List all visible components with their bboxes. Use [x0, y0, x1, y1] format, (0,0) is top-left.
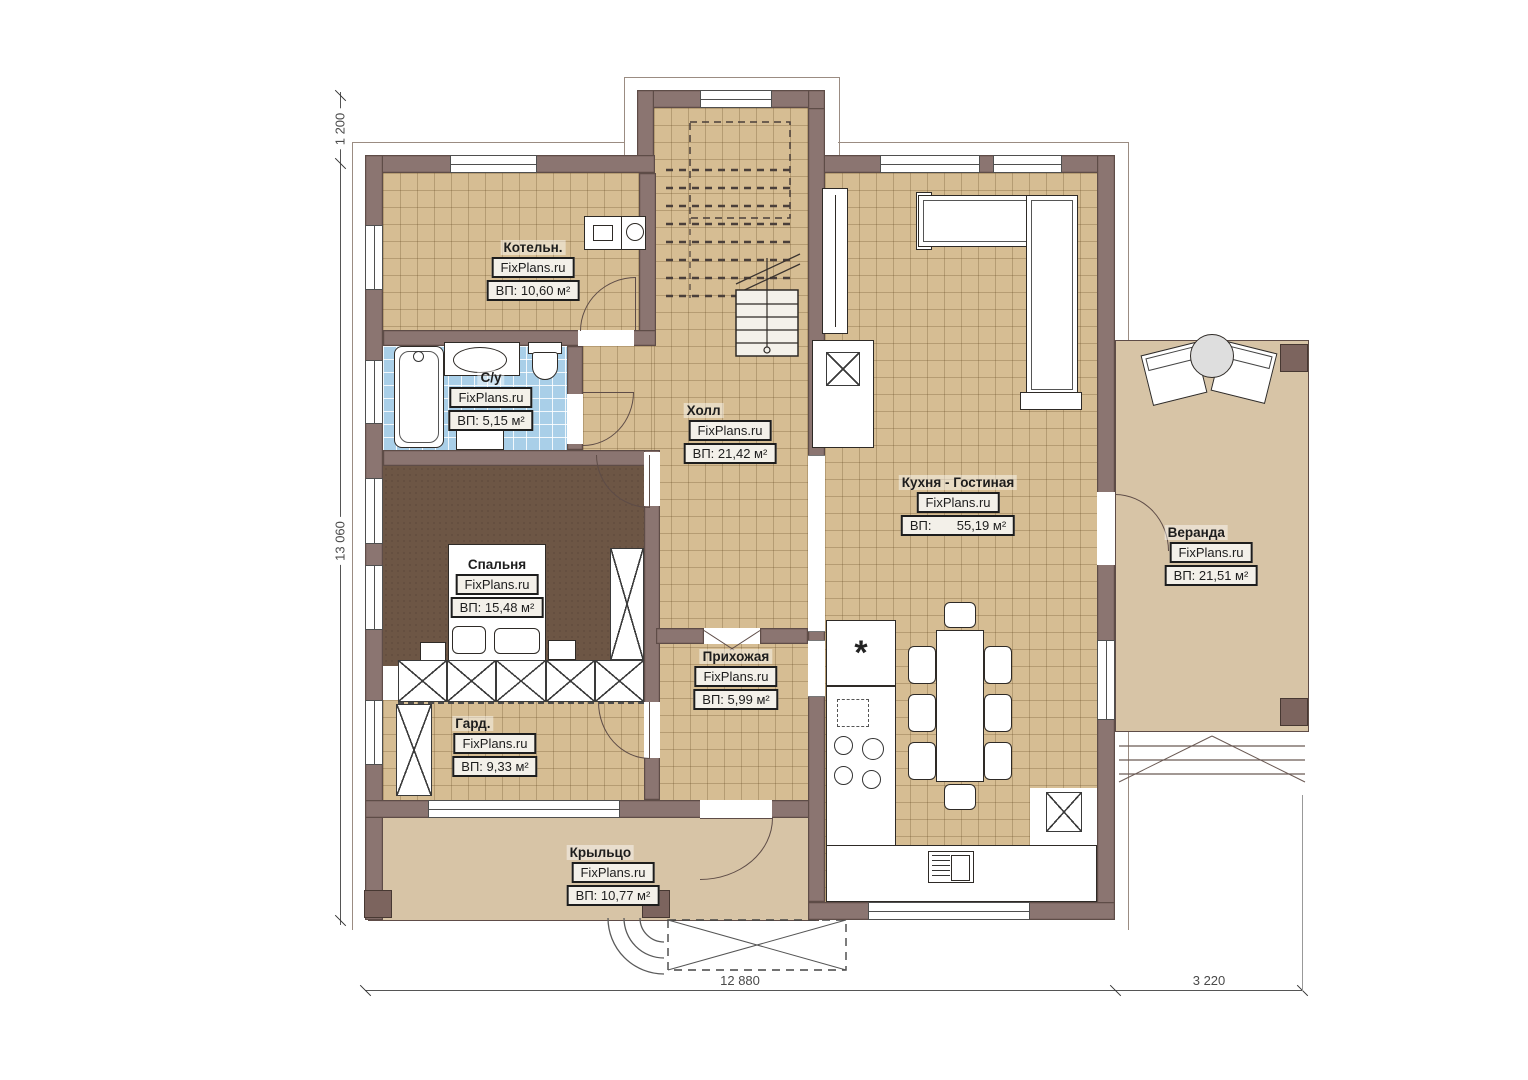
area-box: ВП: 15,48 м² — [451, 597, 544, 618]
veranda-door-opening — [1097, 492, 1115, 565]
chair — [984, 694, 1012, 732]
door-opening — [578, 330, 634, 346]
sink-basin-icon — [951, 855, 970, 881]
washing-machine — [456, 428, 504, 450]
brand-box: FixPlans.ru — [455, 574, 538, 595]
brand-box: FixPlans.ru — [1169, 542, 1252, 563]
window — [450, 155, 537, 173]
bathtub — [394, 346, 444, 448]
nightstand — [420, 642, 446, 662]
room-name: Крыльцо — [567, 845, 634, 860]
chair — [908, 742, 936, 780]
chair — [908, 646, 936, 684]
area-box: ВП: 9,33 м² — [452, 756, 537, 777]
chair — [944, 602, 976, 628]
dimension-line-left — [340, 92, 341, 925]
tall-cabinet — [822, 188, 848, 334]
drainboard-icon — [932, 855, 950, 879]
brand-box: FixPlans.ru — [453, 733, 536, 754]
burner-icon — [862, 770, 881, 789]
stove — [828, 730, 894, 802]
room-label-entry: Прихожая FixPlans.ru ВП: 5,99 м² — [693, 649, 778, 710]
toilet-bowl — [532, 352, 558, 380]
nightstand — [548, 640, 576, 660]
dimension-label-12880: 12 880 — [716, 973, 764, 988]
dining-table — [936, 630, 984, 782]
window — [365, 565, 383, 630]
window — [365, 225, 383, 290]
dimension-label-1200: 1 200 — [333, 109, 348, 150]
column — [364, 890, 392, 918]
room-label-wardrobe: Гард. FixPlans.ru ВП: 9,33 м² — [452, 716, 537, 777]
kitchen-sink-unit — [928, 851, 974, 883]
area-box: ВП: 21,51 м² — [1165, 565, 1258, 586]
closet-cell — [595, 660, 644, 702]
burner-icon — [834, 736, 853, 755]
passage-opening — [808, 640, 825, 697]
sofa-armrest — [1020, 392, 1082, 410]
chair — [984, 742, 1012, 780]
passage-opening — [808, 455, 825, 632]
tall-cabinet-line — [835, 195, 836, 327]
room-label-porch: Крыльцо FixPlans.ru ВП: 10,77 м² — [567, 845, 660, 906]
eaves-left — [352, 142, 353, 930]
window — [1097, 640, 1115, 720]
room-label-veranda: Веранда FixPlans.ru ВП: 21,51 м² — [1165, 525, 1258, 586]
room-label-hall: Холл FixPlans.ru ВП: 21,42 м² — [684, 403, 777, 464]
room-name: Спальня — [465, 557, 529, 572]
brand-box: FixPlans.ru — [916, 492, 999, 513]
eaves-top-left — [352, 142, 624, 143]
eaves-right-upper — [1128, 142, 1129, 340]
closet-cell — [398, 660, 447, 702]
area-box: ВП: 5,15 м² — [448, 410, 533, 431]
brand-box: FixPlans.ru — [571, 862, 654, 883]
brand-box: FixPlans.ru — [491, 257, 574, 278]
wall — [760, 628, 808, 644]
round-table — [1190, 334, 1234, 378]
column — [1280, 344, 1308, 372]
room-name: Гард. — [452, 716, 493, 731]
area-box: ВП: 5,99 м² — [693, 689, 778, 710]
window — [428, 800, 620, 818]
brand-box: FixPlans.ru — [688, 420, 771, 441]
extension-line — [1302, 795, 1303, 991]
wall — [656, 628, 704, 644]
room-name: С/у — [477, 370, 504, 385]
burner-icon — [834, 766, 853, 785]
fireplace-flue-icon — [826, 352, 860, 386]
staircase — [654, 108, 808, 358]
wardrobe-cabinet — [396, 704, 432, 796]
window — [880, 155, 980, 173]
room-name: Кухня - Гостиная — [899, 475, 1017, 490]
burner-icon — [862, 738, 884, 760]
brand-box: FixPlans.ru — [449, 387, 532, 408]
boiler-circle-icon — [626, 223, 644, 241]
window — [868, 902, 1030, 920]
area-box: ВП: 21,42 м² — [684, 443, 777, 464]
chair — [944, 784, 976, 810]
dimension-label-3220: 3 220 — [1189, 973, 1230, 988]
bathtub-faucet-icon — [413, 351, 424, 362]
dimension-label-13060: 13 060 — [333, 517, 348, 565]
pillow — [494, 628, 540, 654]
wardrobe-cabinet — [610, 548, 644, 660]
room-name: Котельн. — [500, 240, 565, 255]
window — [700, 90, 772, 108]
room-label-bedroom: Спальня FixPlans.ru ВП: 15,48 м² — [451, 557, 544, 618]
window — [365, 478, 383, 544]
window — [993, 155, 1062, 173]
eaves-top-right — [838, 142, 1128, 143]
area-box: ВП: 55,19 м² — [901, 515, 1015, 536]
corner-sofa-vertical — [1026, 195, 1078, 395]
entrance-opening — [700, 800, 772, 818]
closet-cell — [447, 660, 496, 702]
floor-plan: * Котельн. FixPlans.ru — [0, 0, 1528, 1080]
closet-cell — [496, 660, 545, 702]
brand-box: FixPlans.ru — [694, 666, 777, 687]
door-opening — [567, 394, 583, 444]
room-name: Прихожая — [700, 649, 773, 664]
boiler-panel — [593, 225, 613, 241]
sofa-seat-line — [1031, 200, 1073, 390]
bathtub-basin — [399, 351, 439, 443]
column — [1280, 698, 1308, 726]
window — [365, 360, 383, 424]
dimension-line-bottom — [365, 990, 1302, 991]
room-label-bathroom: С/у FixPlans.ru ВП: 5,15 м² — [448, 370, 533, 431]
closet-cell — [546, 660, 595, 702]
wall — [639, 173, 656, 346]
room-name: Веранда — [1165, 525, 1228, 540]
closet-row — [398, 660, 644, 704]
veranda-steps — [1117, 732, 1307, 790]
room-label-boiler: Котельн. FixPlans.ru ВП: 10,60 м² — [487, 240, 580, 301]
chair — [908, 694, 936, 732]
boiler-unit — [584, 216, 646, 250]
pillow — [452, 626, 486, 654]
window — [365, 700, 383, 765]
room-label-kitchen-living: Кухня - Гостиная FixPlans.ru ВП: 55,19 м… — [899, 475, 1017, 536]
chair — [984, 646, 1012, 684]
cabinet-x — [1046, 792, 1082, 832]
area-box: ВП: 10,60 м² — [487, 280, 580, 301]
area-box: ВП: 10,77 м² — [567, 885, 660, 906]
fridge-symbol: * — [854, 634, 867, 673]
room-name: Холл — [684, 403, 724, 418]
fridge: * — [826, 620, 896, 686]
boiler-divider — [621, 217, 622, 249]
counter-dashed-unit — [837, 699, 869, 727]
